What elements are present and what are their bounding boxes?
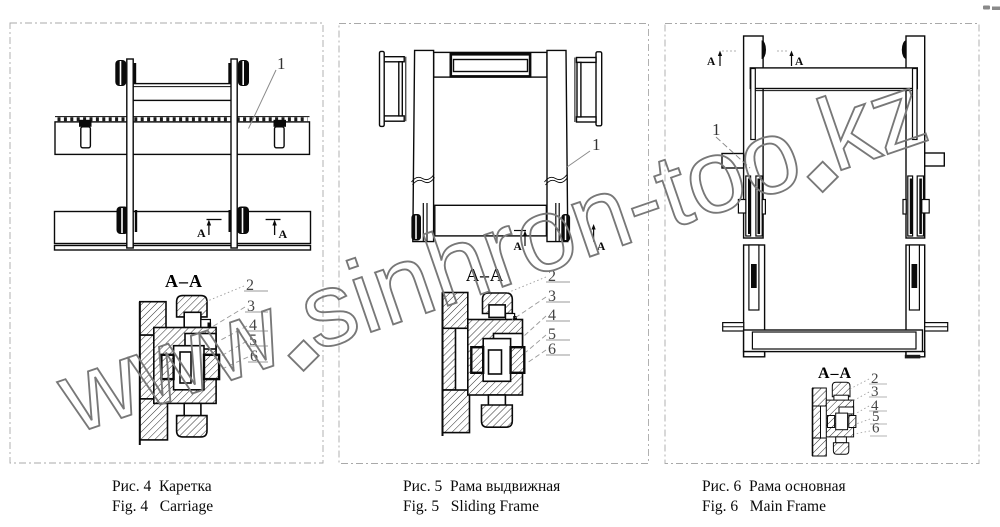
svg-text:Рис. 5 Рама выдвижная: Рис. 5 Рама выдвижная <box>403 478 560 495</box>
svg-text:A: A <box>707 56 716 68</box>
svg-text:A: A <box>795 56 804 68</box>
svg-text:A: A <box>279 227 288 241</box>
svg-text:A–A: A–A <box>818 365 852 382</box>
svg-text:A–A: A–A <box>165 271 203 291</box>
svg-text:Рис. 6 Рама основная: Рис. 6 Рама основная <box>702 478 846 495</box>
svg-text:Рис. 4 Каретка: Рис. 4 Каретка <box>112 478 212 495</box>
svg-text:1: 1 <box>592 135 601 154</box>
svg-text:6: 6 <box>548 341 556 358</box>
svg-text:6: 6 <box>872 421 880 437</box>
svg-text:4: 4 <box>548 307 556 324</box>
svg-text:1: 1 <box>277 54 286 73</box>
svg-text:Fig. 5 Sliding Frame: Fig. 5 Sliding Frame <box>403 498 539 515</box>
svg-text:A: A <box>197 226 206 240</box>
svg-text:Fig. 4 Carriage: Fig. 4 Carriage <box>112 498 213 515</box>
svg-text:Fig. 6 Main Frame: Fig. 6 Main Frame <box>702 498 826 515</box>
